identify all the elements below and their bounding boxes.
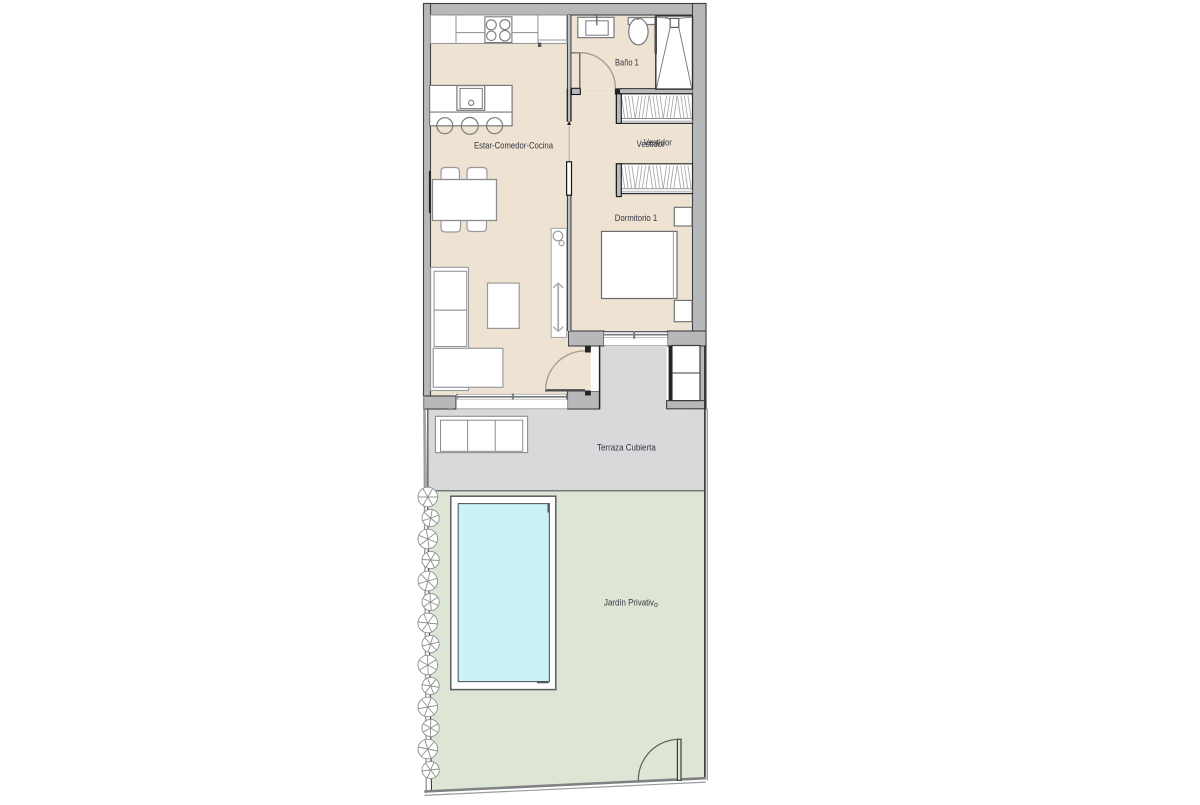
svg-text:Terraza Cubierta: Terraza Cubierta (597, 443, 656, 454)
svg-text:o: o (654, 602, 658, 609)
svg-text:Vestidor: Vestidor (644, 137, 673, 148)
svg-text:Dormitorio 1: Dormitorio 1 (615, 213, 658, 224)
svg-text:Estar-Comedor-Cocina: Estar-Comedor-Cocina (474, 141, 554, 152)
svg-text:Baño 1: Baño 1 (615, 57, 639, 68)
svg-text:Jardín Privativ: Jardín Privativ (604, 598, 654, 609)
